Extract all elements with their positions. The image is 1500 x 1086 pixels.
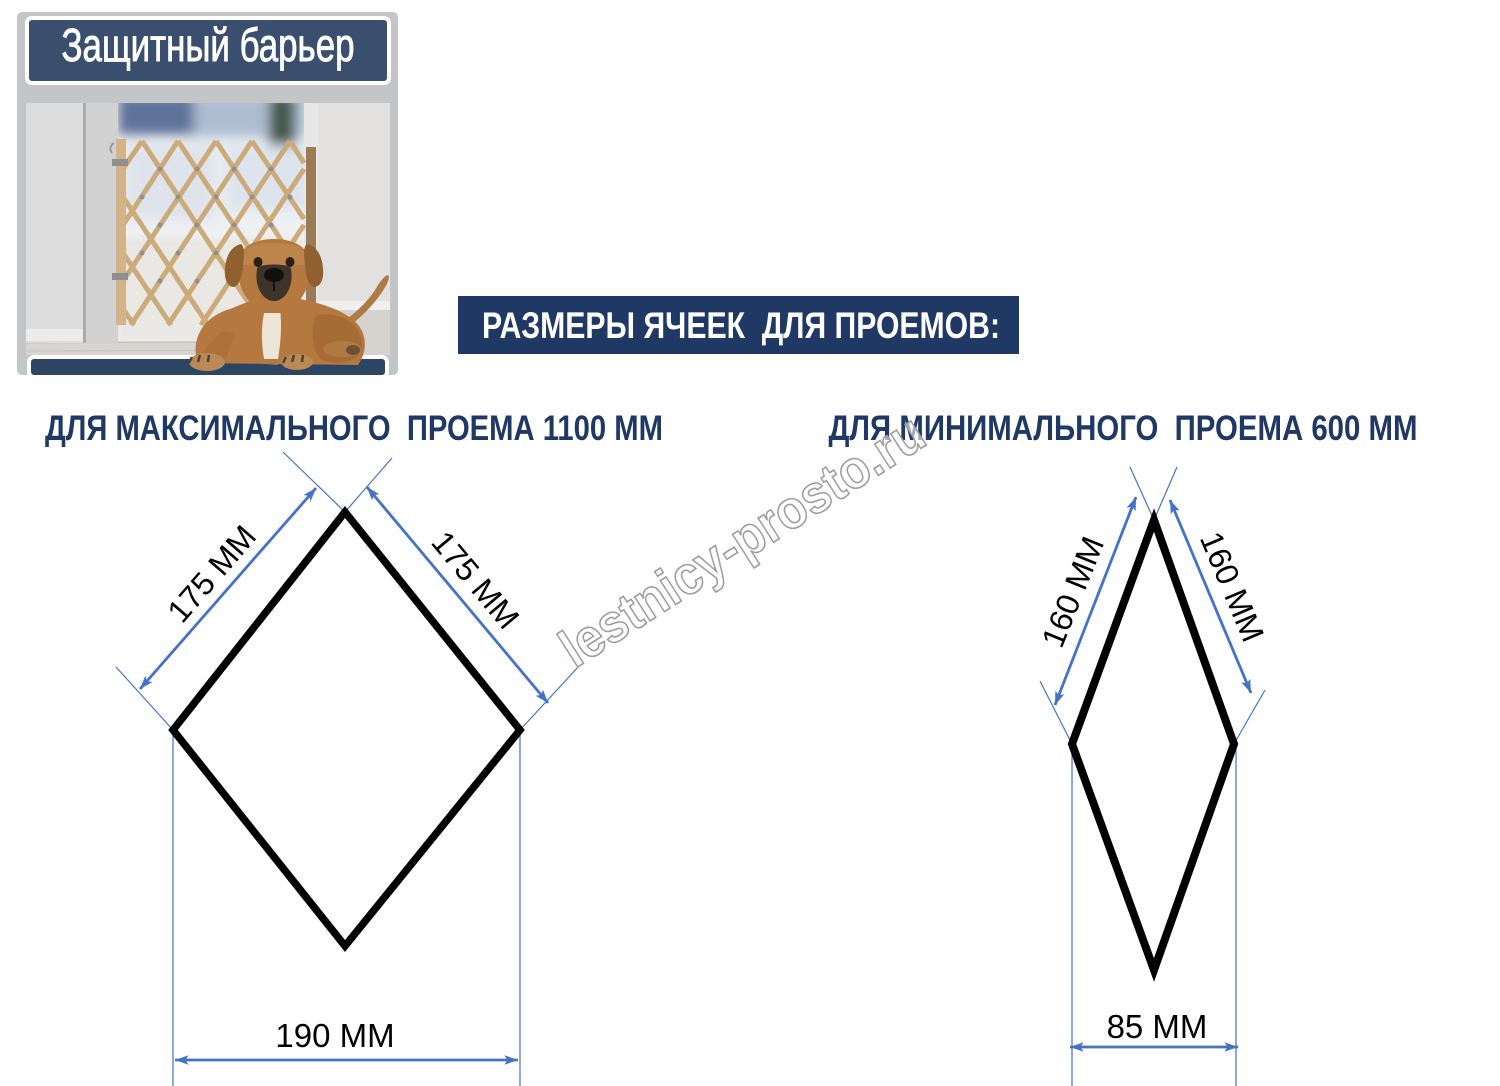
svg-text:175 ММ: 175 ММ: [424, 524, 526, 636]
svg-text:РАЗМЕРЫ ЯЧЕЕК ДЛЯ ПРОЕМОВ:: РАЗМЕРЫ ЯЧЕЕК ДЛЯ ПРОЕМОВ:: [482, 305, 1000, 346]
svg-text:ДЛЯ МАКСИМАЛЬНОГО ПРОЕМА 1100: ДЛЯ МАКСИМАЛЬНОГО ПРОЕМА 1100 ММ: [45, 409, 663, 448]
svg-text:175 ММ: 175 ММ: [160, 518, 263, 629]
svg-text:Защитный барьер: Защитный барьер: [62, 19, 355, 71]
svg-text:85 ММ: 85 ММ: [1107, 1008, 1208, 1045]
svg-text:160 ММ: 160 ММ: [1193, 526, 1271, 646]
svg-text:190 ММ: 190 ММ: [275, 1017, 394, 1054]
